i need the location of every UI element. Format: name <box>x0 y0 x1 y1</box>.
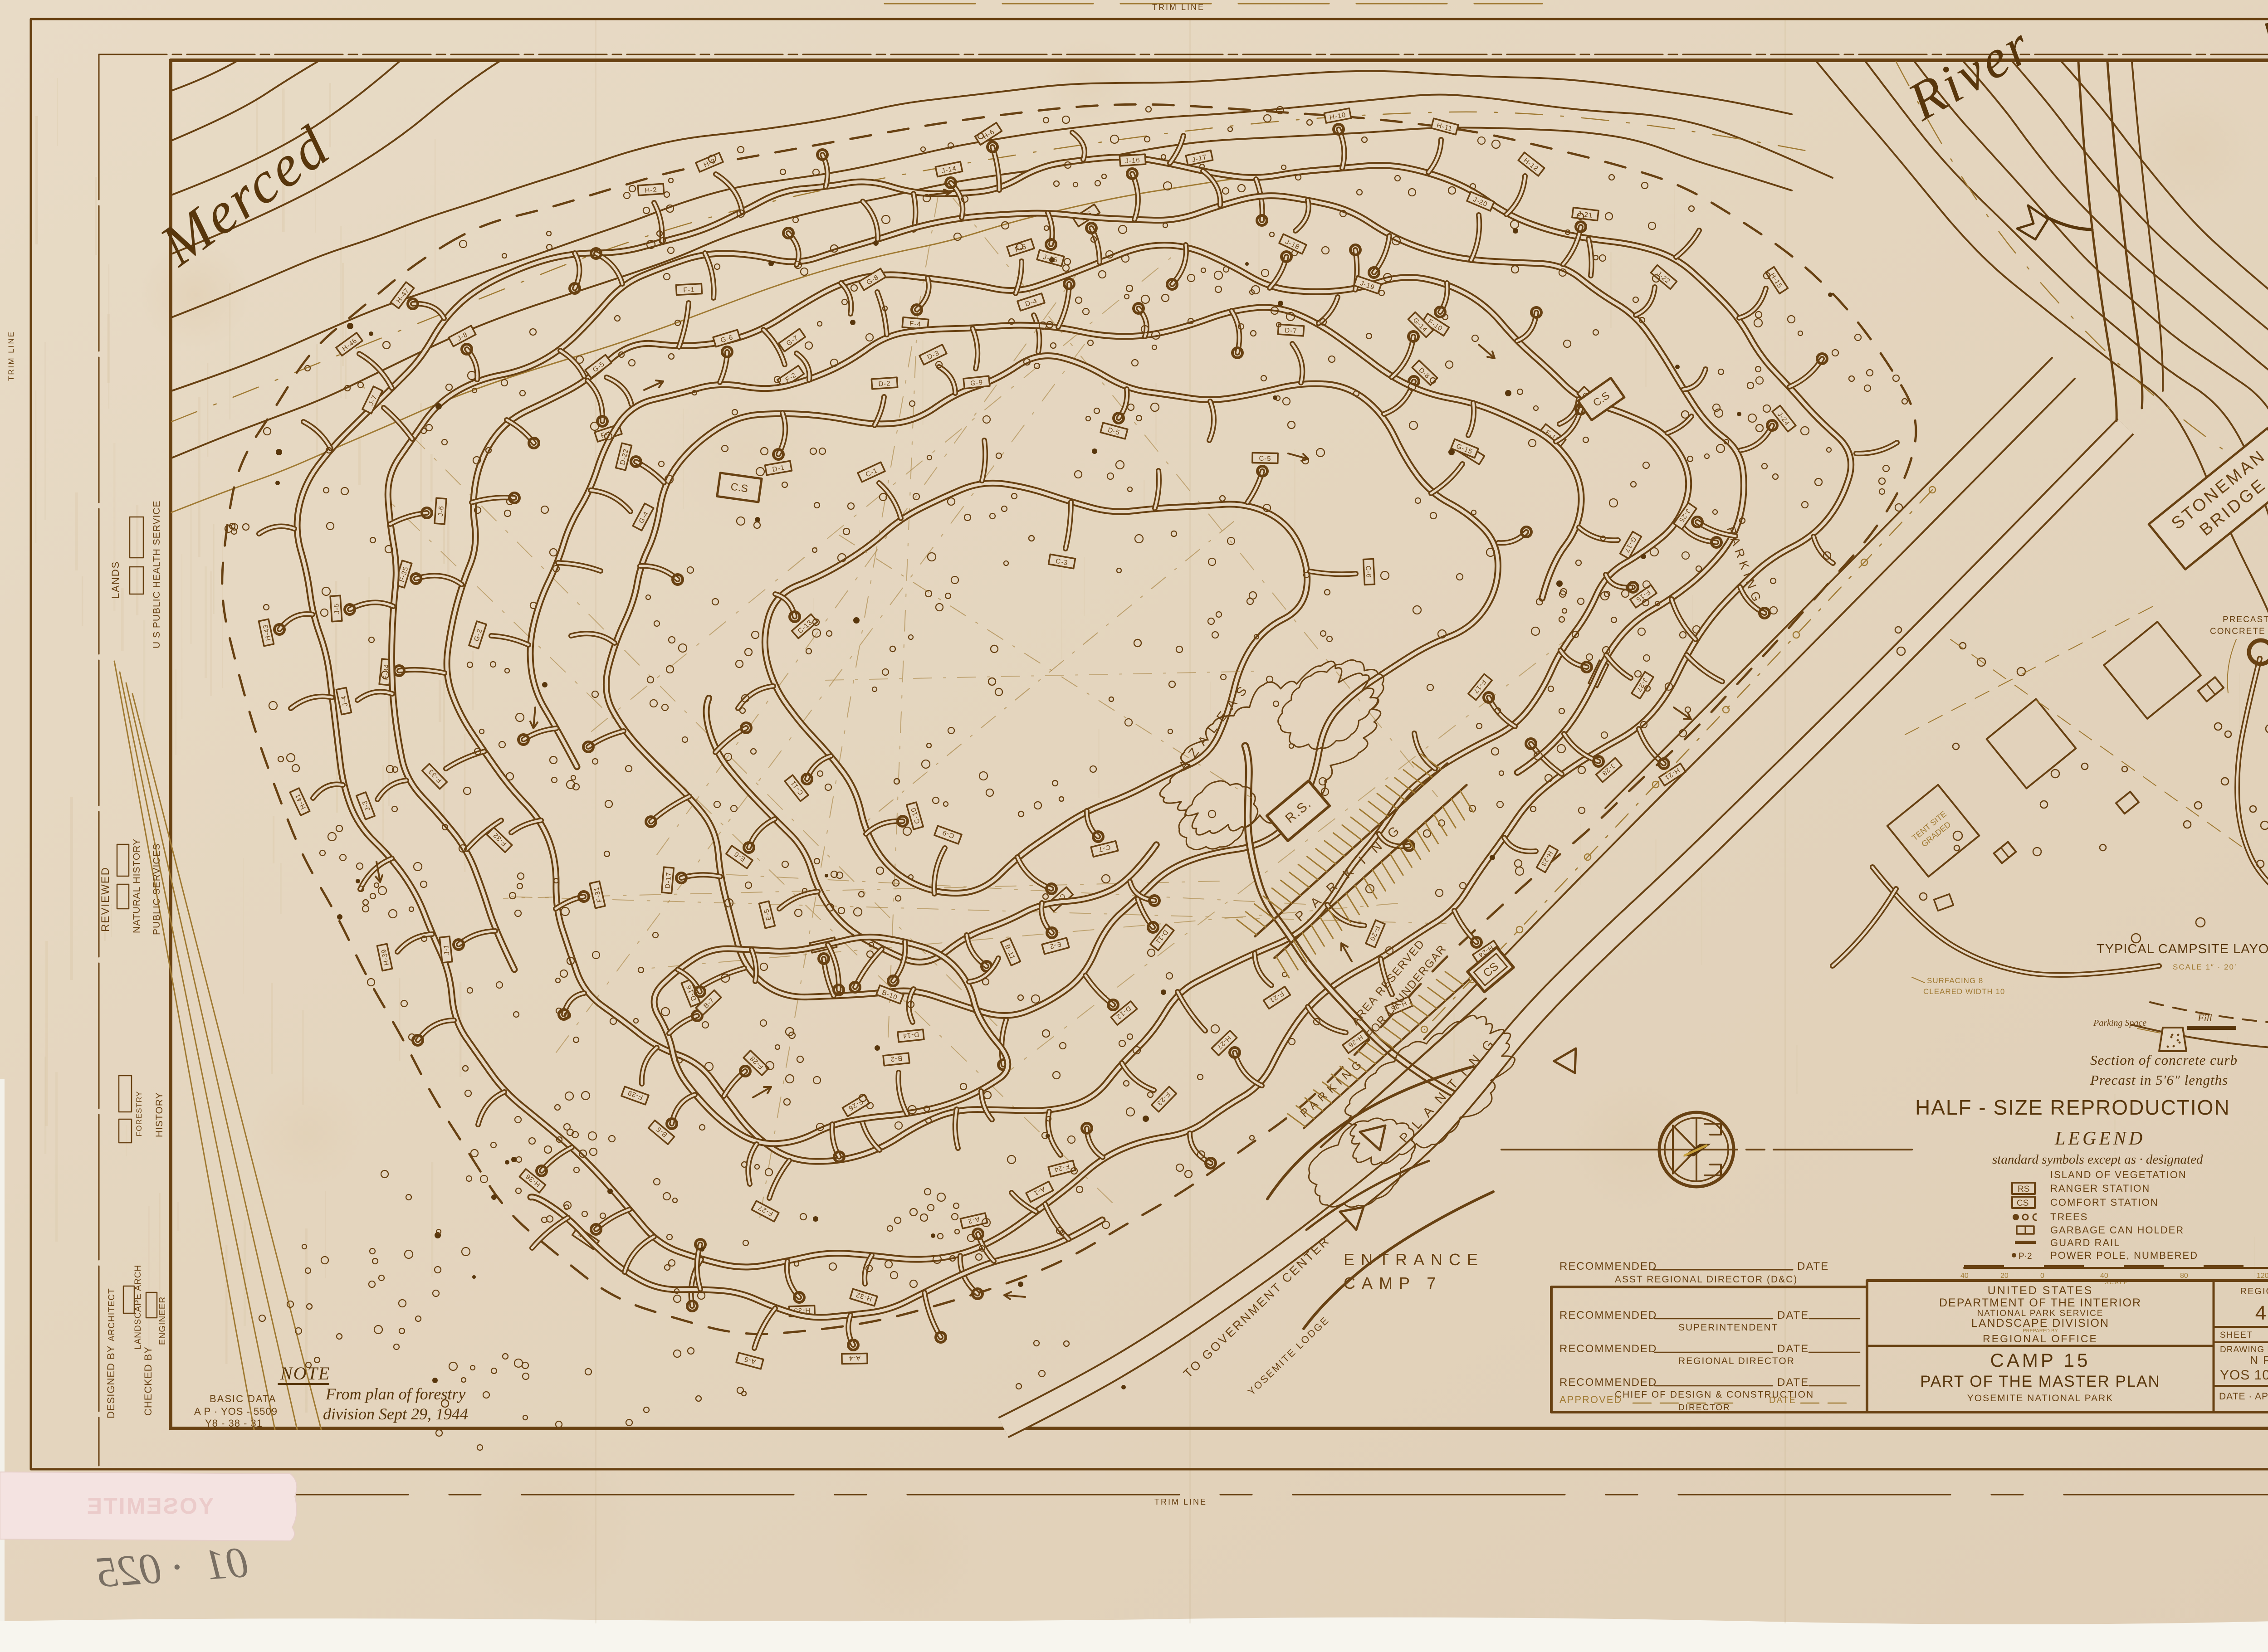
svg-text:COMFORT STATION: COMFORT STATION <box>2050 1197 2159 1208</box>
svg-text:TYPICAL CAMPSITE LAYOUTS: TYPICAL CAMPSITE LAYOUTS <box>2097 942 2268 956</box>
svg-text:REGIONAL DIRECTOR: REGIONAL DIRECTOR <box>1678 1356 1795 1366</box>
svg-text:YOSEMITE: YOSEMITE <box>86 1493 214 1519</box>
svg-text:C-5: C-5 <box>1259 455 1271 463</box>
svg-text:CAMP 7: CAMP 7 <box>1344 1274 1442 1292</box>
svg-text:PRECAST: PRECAST <box>2223 615 2268 624</box>
svg-text:YOSEMITE NATIONAL PARK: YOSEMITE NATIONAL PARK <box>1967 1393 2114 1403</box>
svg-text:ISLAND OF VEGETATION: ISLAND OF VEGETATION <box>2050 1169 2187 1180</box>
svg-text:NATURAL HISTORY: NATURAL HISTORY <box>132 838 142 933</box>
svg-text:HISTORY: HISTORY <box>154 1092 165 1137</box>
svg-text:RS: RS <box>2018 1184 2029 1194</box>
svg-text:YOS 1058-C: YOS 1058-C <box>2220 1368 2268 1383</box>
svg-text:SHEET: SHEET <box>2220 1330 2253 1340</box>
svg-text:ARCHITECT: ARCHITECT <box>107 1288 117 1341</box>
svg-text:A P · YOS - 5509: A P · YOS - 5509 <box>194 1406 278 1417</box>
svg-text:Parking Space: Parking Space <box>2093 1018 2146 1028</box>
svg-text:DRAWING NO.: DRAWING NO. <box>2220 1345 2268 1355</box>
svg-text:Section of concrete curb: Section of concrete curb <box>2090 1052 2238 1068</box>
svg-text:DATE: DATE <box>1777 1343 1809 1355</box>
svg-text:CLEARED WIDTH 10: CLEARED WIDTH 10 <box>1923 987 2005 996</box>
svg-text:120 FT: 120 FT <box>2257 1272 2268 1280</box>
svg-text:TRIM LINE: TRIM LINE <box>1154 1497 1207 1506</box>
svg-text:G-9: G-9 <box>970 379 983 388</box>
svg-text:Y8 - 38 - 31: Y8 - 38 - 31 <box>205 1418 263 1429</box>
svg-text:C.S: C.S <box>730 480 749 494</box>
svg-text:J-16: J-16 <box>1125 156 1140 165</box>
svg-text:GARBAGE CAN HOLDER: GARBAGE CAN HOLDER <box>2050 1224 2184 1236</box>
svg-text:DATE: DATE <box>1769 1395 1796 1405</box>
svg-text:40: 40 <box>1960 1272 1969 1280</box>
svg-text:LEGEND: LEGEND <box>2054 1128 2145 1149</box>
svg-text:80: 80 <box>2180 1272 2188 1280</box>
svg-text:J-5: J-5 <box>332 603 341 614</box>
svg-text:SURFACING 8: SURFACING 8 <box>1927 976 1983 985</box>
svg-text:ENGINEER: ENGINEER <box>158 1296 167 1345</box>
svg-text:20: 20 <box>2000 1272 2009 1280</box>
svg-text:DATE: DATE <box>1797 1260 1829 1272</box>
svg-text:BASIC DATA: BASIC DATA <box>210 1393 277 1404</box>
svg-text:REGION: REGION <box>2240 1287 2268 1296</box>
svg-text:POWER POLE, NUMBERED: POWER POLE, NUMBERED <box>2050 1250 2198 1261</box>
svg-text:F-1: F-1 <box>683 286 695 294</box>
svg-text:U S PUBLIC HEALTH SERVICE: U S PUBLIC HEALTH SERVICE <box>152 501 162 648</box>
svg-text:4: 4 <box>2255 1302 2266 1324</box>
svg-text:0: 0 <box>2040 1272 2044 1280</box>
svg-text:RECOMMENDED: RECOMMENDED <box>1559 1309 1657 1321</box>
svg-text:C-6: C-6 <box>1364 565 1372 578</box>
svg-text:TRIM LINE: TRIM LINE <box>1152 3 1205 12</box>
svg-text:REGIONAL OFFICE: REGIONAL OFFICE <box>1983 1333 2098 1345</box>
svg-text:DIRECTOR: DIRECTOR <box>1678 1403 1730 1413</box>
svg-text:D-17: D-17 <box>664 872 673 889</box>
svg-text:RECOMMENDED: RECOMMENDED <box>1559 1260 1657 1272</box>
svg-text:D-2: D-2 <box>878 380 891 388</box>
svg-text:CONCRETE CURB: CONCRETE CURB <box>2210 627 2268 636</box>
svg-text:A-4: A-4 <box>849 1354 861 1362</box>
svg-text:REVIEWED: REVIEWED <box>99 867 112 932</box>
svg-text:D-7: D-7 <box>1285 327 1297 335</box>
svg-text:From plan of forestry: From plan of forestry <box>325 1385 465 1403</box>
svg-text:DATE: DATE <box>1777 1376 1809 1389</box>
svg-text:SUPERINTENDENT: SUPERINTENDENT <box>1678 1322 1779 1333</box>
svg-text:PUBLIC SERVICES: PUBLIC SERVICES <box>152 843 162 935</box>
svg-text:Precast in 5′6″ lengths: Precast in 5′6″ lengths <box>2090 1072 2228 1088</box>
svg-text:LANDSCAPE DIVISION: LANDSCAPE DIVISION <box>1971 1317 2109 1330</box>
svg-text:TREES: TREES <box>2050 1211 2088 1223</box>
svg-text:ENTRANCE: ENTRANCE <box>1344 1250 1484 1269</box>
svg-text:RECOMMENDED: RECOMMENDED <box>1559 1376 1657 1389</box>
svg-text:DATE: DATE <box>1777 1309 1809 1321</box>
svg-text:CAMP 15: CAMP 15 <box>1990 1350 2091 1371</box>
svg-text:division Sept 29, 1944: division Sept 29, 1944 <box>323 1405 468 1423</box>
svg-text:LANDSCAPE ARCH: LANDSCAPE ARCH <box>133 1265 143 1350</box>
svg-text:RECOMMENDED: RECOMMENDED <box>1559 1343 1657 1355</box>
svg-text:Fill: Fill <box>2197 1012 2212 1023</box>
svg-text:DESIGNED BY: DESIGNED BY <box>105 1345 117 1418</box>
svg-text:LANDS: LANDS <box>110 561 121 599</box>
svg-text:NOTE: NOTE <box>280 1363 330 1384</box>
svg-text:DATE · APR 1952: DATE · APR 1952 <box>2219 1391 2268 1402</box>
svg-text:CHECKED BY: CHECKED BY <box>142 1346 154 1416</box>
svg-text:DEPARTMENT OF THE INTERIOR: DEPARTMENT OF THE INTERIOR <box>1939 1296 2141 1309</box>
svg-text:J-1: J-1 <box>442 944 451 955</box>
svg-text:APPROVED: APPROVED <box>1559 1394 1622 1405</box>
svg-text:standard symbols except as ·: standard symbols except as · designated <box>1992 1152 2203 1167</box>
svg-text:CS: CS <box>2017 1199 2028 1208</box>
svg-text:B-2: B-2 <box>890 1054 903 1063</box>
svg-text:SCALE 1″ · 20′: SCALE 1″ · 20′ <box>2173 963 2237 971</box>
svg-text:ASST REGIONAL DIRECTOR (D&C: ASST REGIONAL DIRECTOR (D&C) <box>1615 1274 1798 1285</box>
svg-text:F-4: F-4 <box>909 320 921 328</box>
svg-text:H-2: H-2 <box>645 186 657 195</box>
svg-text:HALF - SIZE REPRODUCTION: HALF - SIZE REPRODUCTION <box>1915 1096 2230 1119</box>
svg-text:P·2: P·2 <box>2019 1252 2032 1261</box>
svg-text:PART OF THE MASTER PLAN: PART OF THE MASTER PLAN <box>1920 1373 2160 1390</box>
svg-text:J-6: J-6 <box>437 506 445 517</box>
svg-text:FORESTRY: FORESTRY <box>135 1091 143 1136</box>
svg-text:TRIM LINE: TRIM LINE <box>7 331 15 381</box>
svg-text:UNITED STATES: UNITED STATES <box>1988 1284 2093 1297</box>
svg-text:GUARD RAIL: GUARD RAIL <box>2050 1237 2120 1248</box>
svg-text:RANGER STATION: RANGER STATION <box>2050 1183 2150 1194</box>
svg-text:N P: N P <box>2250 1354 2268 1367</box>
